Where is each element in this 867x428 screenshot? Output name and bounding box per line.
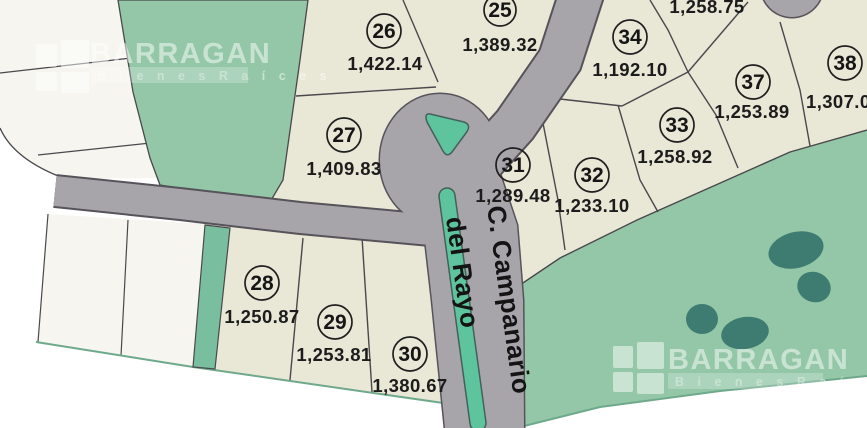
barragan-grid-icon [613,342,664,394]
svg-text:1,253.81: 1,253.81 [296,344,371,365]
svg-text:1,253.89: 1,253.89 [714,101,789,122]
plat-map-svg: 25 1,389.32 26 1,422.14 27 1,409.83 28 1… [0,0,867,428]
subdivision-map: 25 1,389.32 26 1,422.14 27 1,409.83 28 1… [0,0,867,428]
svg-text:1,422.14: 1,422.14 [347,53,423,74]
barragan-grid-icon [36,40,89,93]
tree-blob [686,304,718,334]
watermark-brand-text: BARRAGAN [90,38,271,70]
svg-text:1,409.83: 1,409.83 [306,158,381,179]
svg-text:1,307.0: 1,307.0 [806,91,867,112]
svg-text:1,380.67: 1,380.67 [372,375,447,396]
svg-text:30: 30 [398,343,421,366]
svg-text:1,258.92: 1,258.92 [637,146,712,167]
svg-text:32: 32 [580,164,603,187]
svg-text:33: 33 [665,114,688,137]
svg-text:25: 25 [488,0,512,22]
svg-text:1,289.48: 1,289.48 [475,185,550,206]
svg-text:29: 29 [323,311,346,334]
watermark-tagline-text: B i e n e s R a í c e s [97,69,332,83]
svg-text:27: 27 [332,124,355,147]
svg-text:1,389.32: 1,389.32 [462,34,537,55]
lot-label-top-partial: 1,258.75 [669,0,744,17]
watermark-brand-text: BARRAGAN [668,344,849,376]
svg-text:1,192.10: 1,192.10 [592,59,667,80]
svg-text:1,250.87: 1,250.87 [224,306,299,327]
watermark-tagline-text: B i e n e s R a í c e s [675,375,867,389]
svg-text:37: 37 [741,71,764,94]
watermark-bottom-right: BARRAGAN B i e n e s R a í c e s [613,342,867,394]
svg-text:28: 28 [250,272,274,295]
svg-text:31: 31 [501,154,525,177]
svg-text:34: 34 [618,26,642,49]
svg-text:1,258.75: 1,258.75 [669,0,744,17]
svg-text:26: 26 [372,20,395,43]
svg-text:1,233.10: 1,233.10 [554,195,629,216]
svg-text:38: 38 [833,52,857,75]
